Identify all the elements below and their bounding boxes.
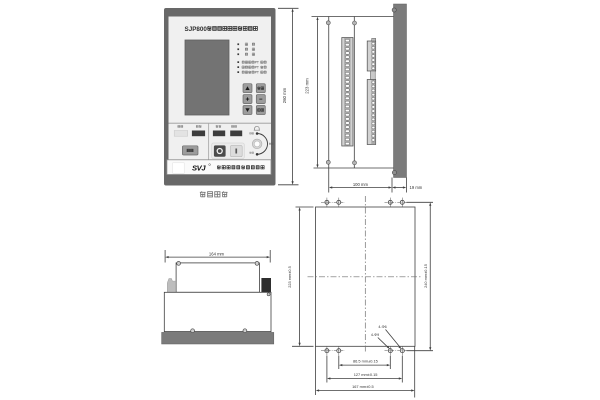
svg-text:240 mm±0.15: 240 mm±0.15	[423, 264, 428, 288]
svg-text:86.5 mm±0.15: 86.5 mm±0.15	[353, 359, 378, 364]
svg-text:4-Φ6: 4-Φ6	[378, 325, 386, 329]
svg-text:100 mm: 100 mm	[353, 182, 369, 187]
svg-text:164 mm: 164 mm	[209, 251, 225, 256]
svg-text:4-Φ9: 4-Φ9	[371, 333, 379, 337]
svg-text:SVJ: SVJ	[192, 164, 206, 173]
svg-text:260 mm: 260 mm	[282, 87, 287, 103]
svg-text:PT: PT	[255, 61, 259, 65]
svg-text:167 mm±0.5: 167 mm±0.5	[352, 384, 374, 389]
svg-text:223 mm: 223 mm	[305, 78, 310, 94]
svg-text:PT: PT	[255, 71, 259, 75]
svg-text:19 mm: 19 mm	[410, 185, 423, 190]
svg-text:PT: PT	[255, 66, 259, 70]
svg-text:SJP800: SJP800	[185, 26, 208, 33]
svg-text:223 mm±0.5: 223 mm±0.5	[287, 266, 292, 288]
svg-text:127 mm±0.15: 127 mm±0.15	[354, 372, 378, 377]
